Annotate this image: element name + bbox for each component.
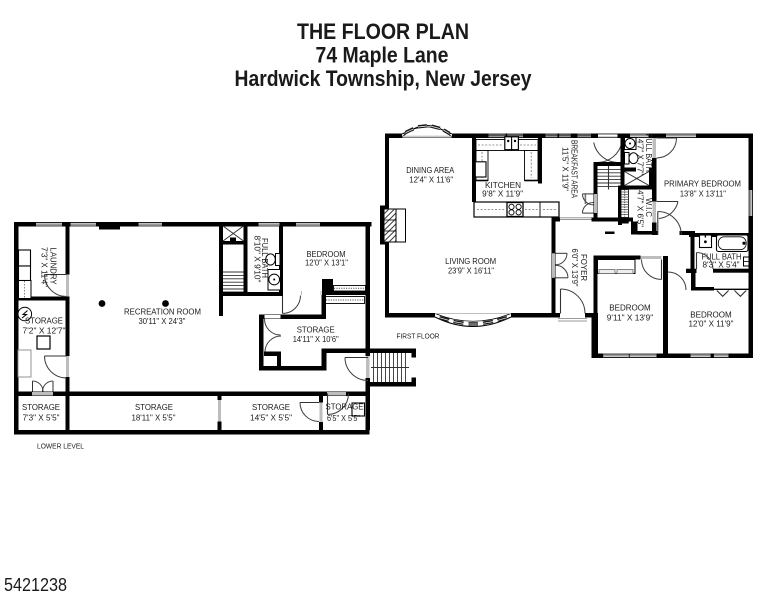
svg-text:DINING AREA: DINING AREA — [406, 165, 454, 175]
svg-text:THE FLOOR PLAN: THE FLOOR PLAN — [297, 19, 469, 44]
svg-text:7'3" X 11'4": 7'3" X 11'4" — [40, 247, 49, 287]
svg-text:14'5" X 5'5": 14'5" X 5'5" — [250, 414, 292, 423]
svg-text:7'2" X 12'7": 7'2" X 12'7" — [23, 327, 66, 336]
svg-text:STORAGE: STORAGE — [326, 402, 364, 412]
svg-text:12'4" X 11'6": 12'4" X 11'6" — [409, 176, 453, 185]
svg-text:9'11" X 13'9": 9'11" X 13'9" — [607, 313, 654, 322]
svg-text:30'11" X 24'3": 30'11" X 24'3" — [139, 317, 186, 326]
svg-text:8'3" X 5'4": 8'3" X 5'4" — [703, 261, 740, 270]
svg-text:74 Maple Lane: 74 Maple Lane — [316, 43, 449, 68]
svg-text:BEDROOM: BEDROOM — [690, 310, 732, 320]
svg-text:6'0" X 13'9": 6'0" X 13'9" — [570, 249, 579, 287]
svg-text:12'0" X 11'9": 12'0" X 11'9" — [689, 320, 734, 329]
svg-text:11'5" X 11'9": 11'5" X 11'9" — [561, 147, 570, 191]
svg-text:23'9" X 16'11": 23'9" X 16'11" — [448, 267, 494, 276]
svg-text:STORAGE: STORAGE — [22, 402, 60, 412]
svg-text:14'11" X 10'6": 14'11" X 10'6" — [293, 335, 339, 344]
svg-text:FIRST FLOOR: FIRST FLOOR — [397, 331, 440, 340]
svg-text:STORAGE: STORAGE — [297, 325, 335, 335]
svg-text:LIVING ROOM: LIVING ROOM — [445, 256, 496, 266]
svg-text:6'5" X 5'5": 6'5" X 5'5" — [327, 414, 360, 423]
svg-text:STORAGE: STORAGE — [25, 316, 63, 326]
svg-text:BREAKFAST AREA: BREAKFAST AREA — [570, 140, 580, 198]
svg-text:7'3" X 5'5": 7'3" X 5'5" — [23, 414, 60, 423]
svg-text:KITCHEN: KITCHEN — [485, 180, 521, 190]
svg-text:BEDROOM: BEDROOM — [307, 249, 346, 259]
svg-text:8'10" X 9'10": 8'10" X 9'10" — [253, 236, 262, 283]
svg-text:FOYER: FOYER — [579, 254, 589, 281]
svg-text:5421238: 5421238 — [4, 575, 67, 595]
svg-text:BEDROOM: BEDROOM — [609, 303, 651, 313]
svg-text:STORAGE: STORAGE — [135, 402, 173, 412]
svg-text:9'8" X 11'9": 9'8" X 11'9" — [482, 190, 523, 199]
svg-text:RECREATION ROOM: RECREATION ROOM — [124, 307, 201, 317]
svg-text:LOWER LEVEL: LOWER LEVEL — [37, 442, 84, 451]
svg-text:Hardwick Township, New Jersey: Hardwick Township, New Jersey — [235, 66, 533, 91]
svg-text:LAUNDRY: LAUNDRY — [49, 248, 59, 285]
svg-text:STORAGE: STORAGE — [252, 402, 290, 412]
svg-text:4'7" X 7'7": 4'7" X 7'7" — [636, 139, 645, 175]
svg-text:18'11" X 5'5": 18'11" X 5'5" — [132, 414, 176, 423]
svg-text:12'0" X 13'1": 12'0" X 13'1" — [305, 259, 348, 268]
svg-text:PRIMARY BEDROOM: PRIMARY BEDROOM — [664, 179, 741, 189]
svg-text:13'8" X 13'11": 13'8" X 13'11" — [680, 190, 726, 199]
